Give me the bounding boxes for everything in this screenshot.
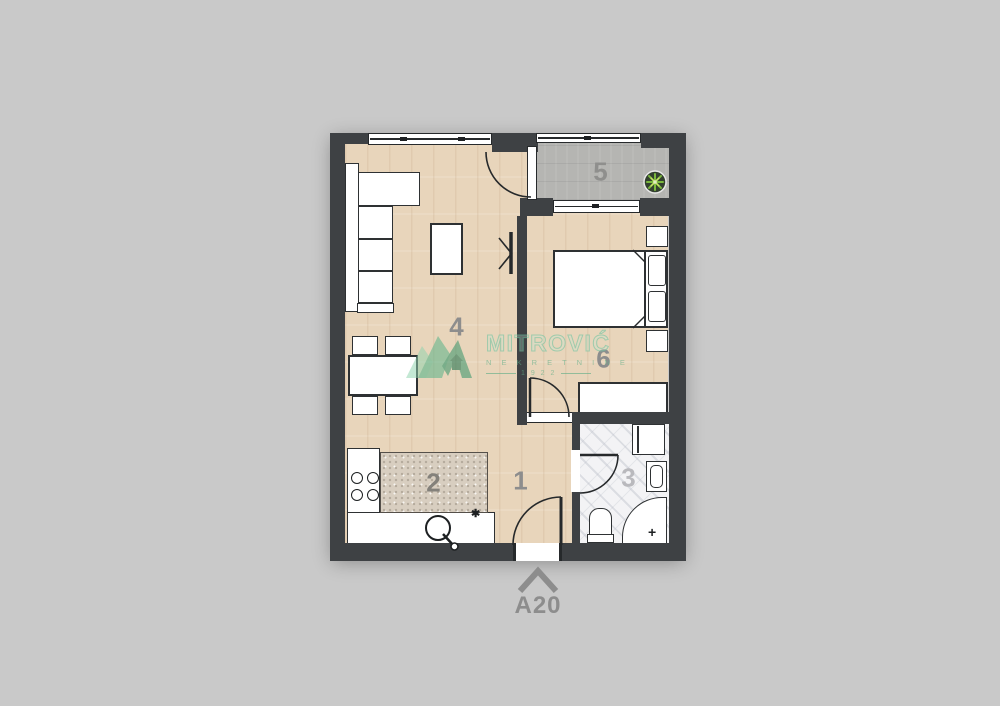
floor-plan-canvas: ✱ + <box>0 0 1000 706</box>
bedroom-door-arc <box>530 378 569 417</box>
entrance-arrow-icon <box>515 566 561 594</box>
kitchen-faucet-icon <box>443 534 458 550</box>
room-label-living-room: 4 <box>449 312 464 343</box>
bed-fold-lines <box>633 250 645 328</box>
room-label-kitchen: 2 <box>426 468 441 499</box>
room-label-bedroom: 6 <box>596 344 611 375</box>
room-label-bathroom: 3 <box>621 463 636 494</box>
terrace-door-arc <box>486 152 531 197</box>
linework-overlay <box>0 0 1000 706</box>
entrance-door-arc <box>513 497 561 545</box>
tv-icon <box>499 232 512 274</box>
room-label-terrace: 5 <box>593 157 608 188</box>
plant-icon <box>644 171 666 193</box>
room-label-hallway: 1 <box>513 466 528 497</box>
bathroom-door-arc <box>580 455 618 493</box>
unit-label: A20 <box>514 592 561 620</box>
